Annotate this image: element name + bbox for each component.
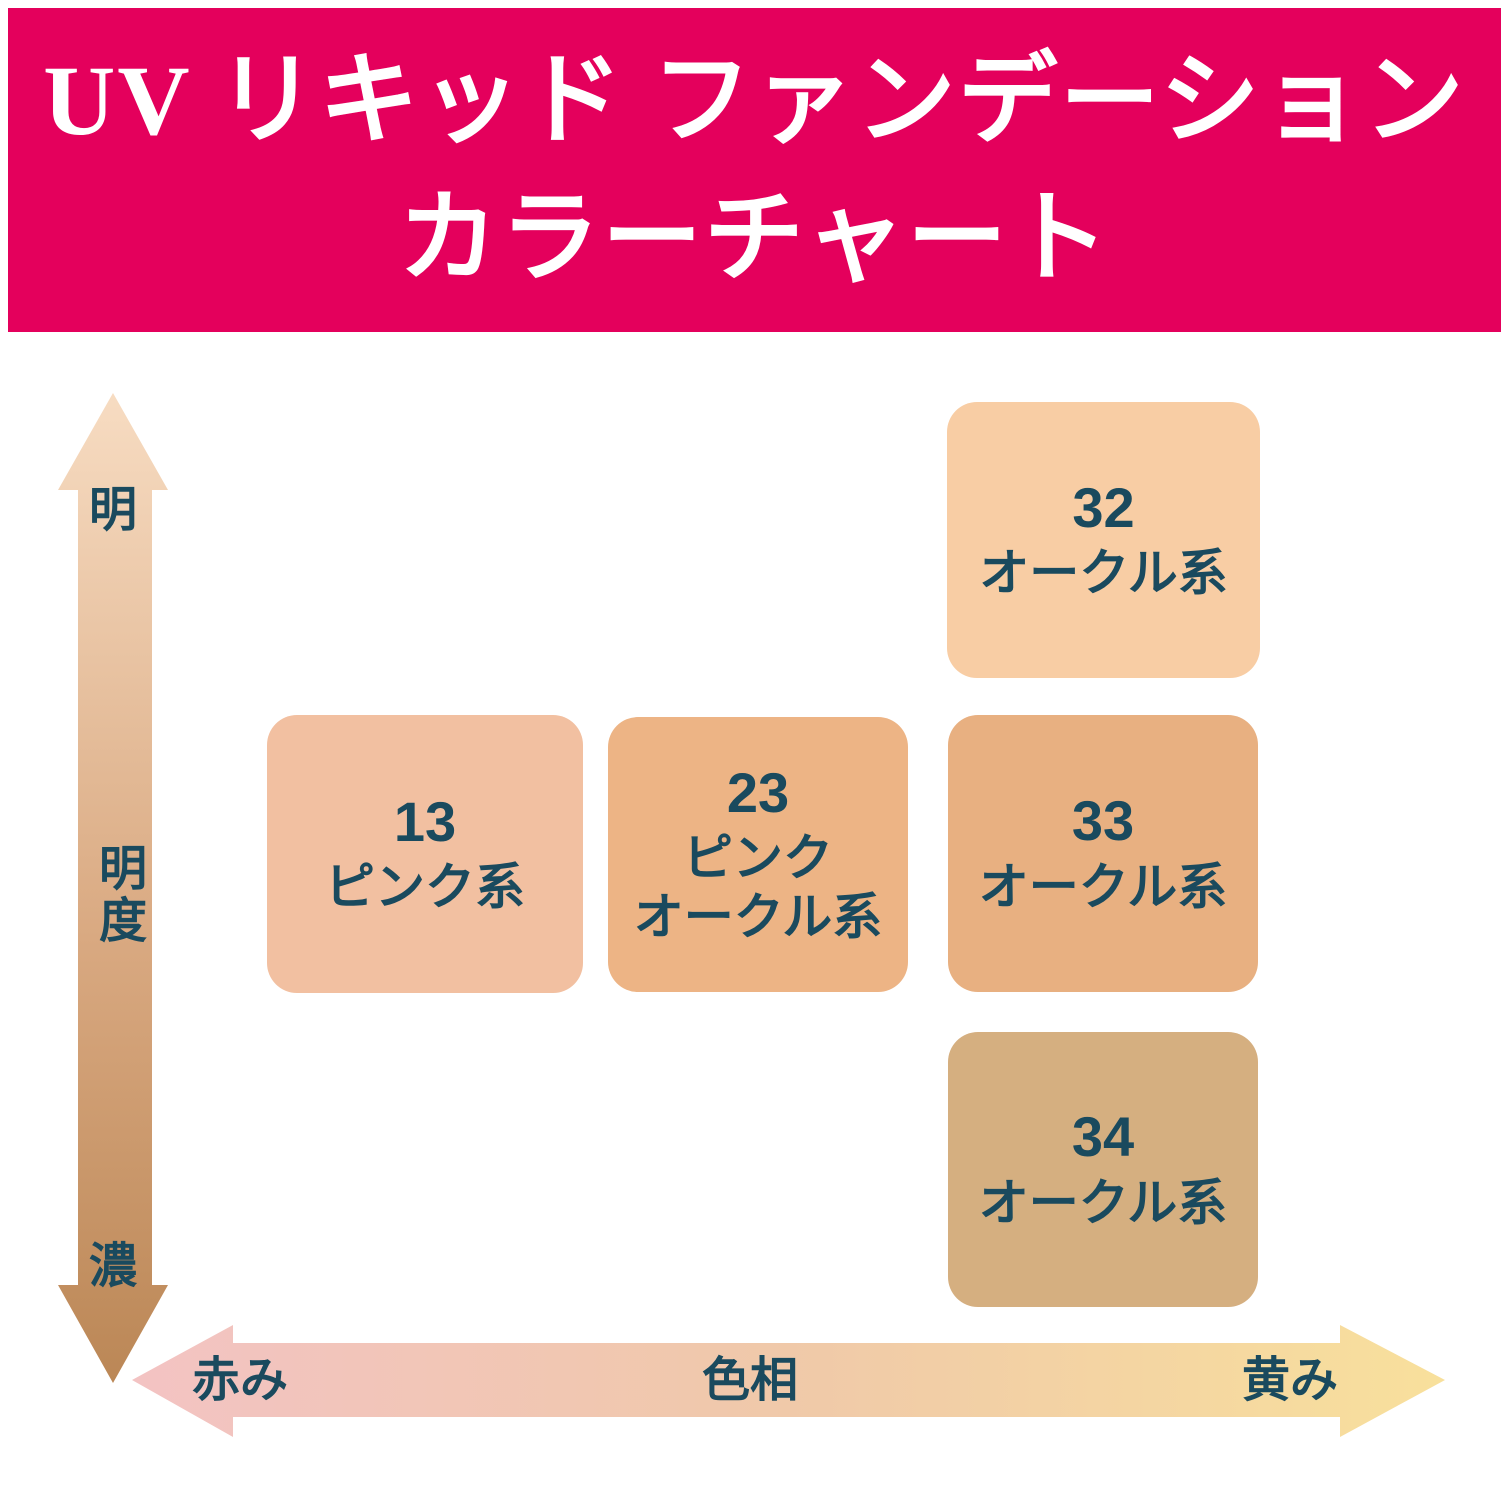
title-banner: UV リキッド ファンデーション カラーチャート <box>8 8 1501 332</box>
shade-swatch-23: 23 ピンク オークル系 <box>608 717 908 992</box>
page-title: UV リキッド ファンデーション <box>43 51 1466 151</box>
shade-number: 34 <box>1072 1106 1134 1168</box>
axis-label-hue: 色相 <box>693 1356 807 1406</box>
shade-swatch-33: 33 オークル系 <box>948 715 1258 992</box>
axis-label-reddish: 赤み <box>183 1356 297 1406</box>
shade-number: 23 <box>727 762 789 824</box>
axis-label-yellowish: 黄み <box>1233 1356 1347 1406</box>
shade-label: オークル系 <box>979 858 1228 917</box>
shade-label: ピンク オークル系 <box>634 829 883 947</box>
shade-swatch-13: 13 ピンク系 <box>267 715 583 993</box>
shade-number: 13 <box>394 791 456 853</box>
shade-label: ピンク系 <box>325 858 525 917</box>
shade-label: オークル系 <box>979 1174 1228 1233</box>
axis-label-dark: 濃 <box>83 1242 143 1292</box>
shade-number: 32 <box>1072 477 1134 539</box>
shade-swatch-32: 32 オークル系 <box>947 402 1260 678</box>
axis-label-lightness: 明度 <box>86 843 142 953</box>
foundation-color-chart: UV リキッド ファンデーション カラーチャート 明 明度 濃 赤み 色相 黄み <box>0 0 1501 1500</box>
page-subtitle: カラーチャート <box>398 189 1111 289</box>
axis-label-bright: 明 <box>83 486 143 536</box>
shade-label: オークル系 <box>979 544 1228 603</box>
shade-number: 33 <box>1072 790 1134 852</box>
shade-swatch-34: 34 オークル系 <box>948 1032 1258 1307</box>
